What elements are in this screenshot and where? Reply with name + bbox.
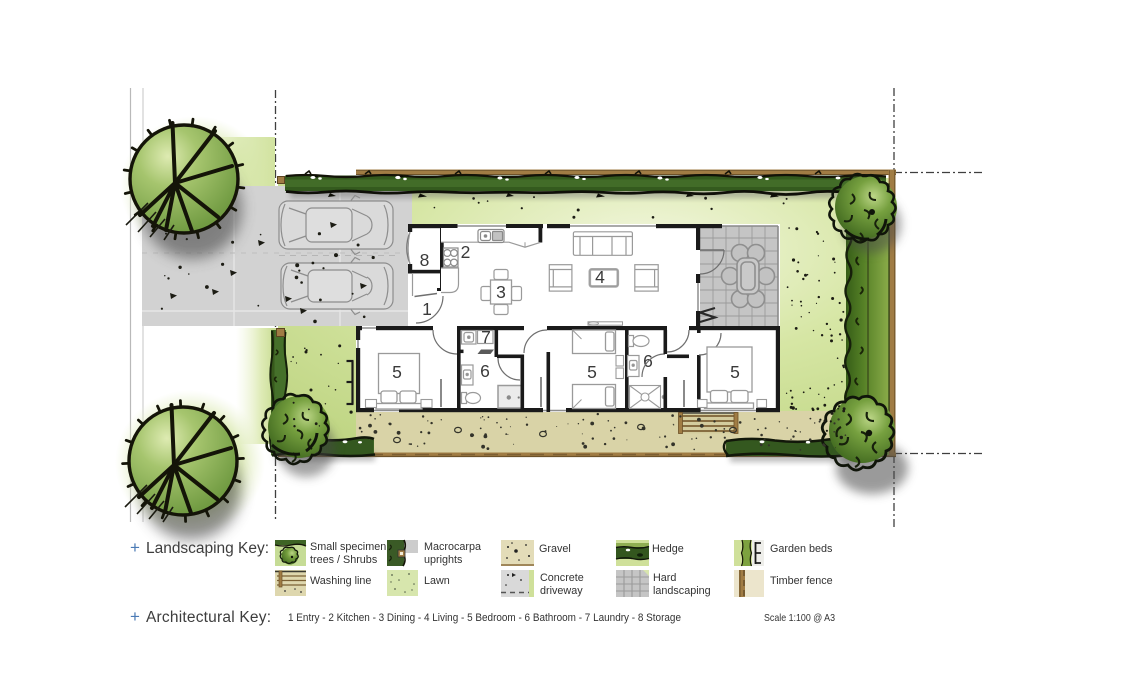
svg-text:landscaping: landscaping	[653, 585, 711, 597]
svg-text:4: 4	[595, 267, 605, 287]
svg-text:Gravel: Gravel	[539, 543, 571, 555]
svg-text:Architectural Key:: Architectural Key:	[146, 609, 271, 626]
svg-text:8: 8	[420, 250, 430, 270]
svg-text:7: 7	[481, 327, 491, 347]
svg-text:+: +	[130, 538, 140, 557]
svg-text:Hedge: Hedge	[652, 543, 684, 555]
svg-text:1 Entry - 2 Kitchen - 3 Dining: 1 Entry - 2 Kitchen - 3 Dining - 4 Livin…	[288, 612, 681, 624]
svg-text:trees / Shrubs: trees / Shrubs	[310, 554, 378, 566]
svg-text:3: 3	[496, 282, 506, 302]
svg-text:5: 5	[730, 362, 740, 382]
svg-text:5: 5	[392, 362, 402, 382]
svg-text:Landscaping Key:: Landscaping Key:	[146, 540, 269, 557]
svg-text:Garden beds: Garden beds	[770, 543, 833, 555]
svg-text:Scale 1:100 @ A3: Scale 1:100 @ A3	[764, 612, 835, 624]
svg-text:Concrete: Concrete	[540, 572, 584, 584]
svg-text:+: +	[130, 607, 140, 626]
svg-text:Small specimen: Small specimen	[310, 541, 386, 553]
svg-text:1: 1	[422, 299, 432, 319]
svg-text:Washing line: Washing line	[310, 575, 371, 587]
svg-text:Lawn: Lawn	[424, 575, 450, 587]
svg-text:driveway: driveway	[540, 585, 583, 597]
svg-text:6: 6	[480, 361, 490, 381]
svg-text:Macrocarpa: Macrocarpa	[424, 541, 481, 553]
svg-text:2: 2	[461, 242, 471, 262]
svg-text:Timber fence: Timber fence	[770, 575, 833, 587]
svg-text:5: 5	[587, 362, 597, 382]
svg-text:uprights: uprights	[424, 554, 463, 566]
svg-text:Hard: Hard	[653, 572, 676, 584]
